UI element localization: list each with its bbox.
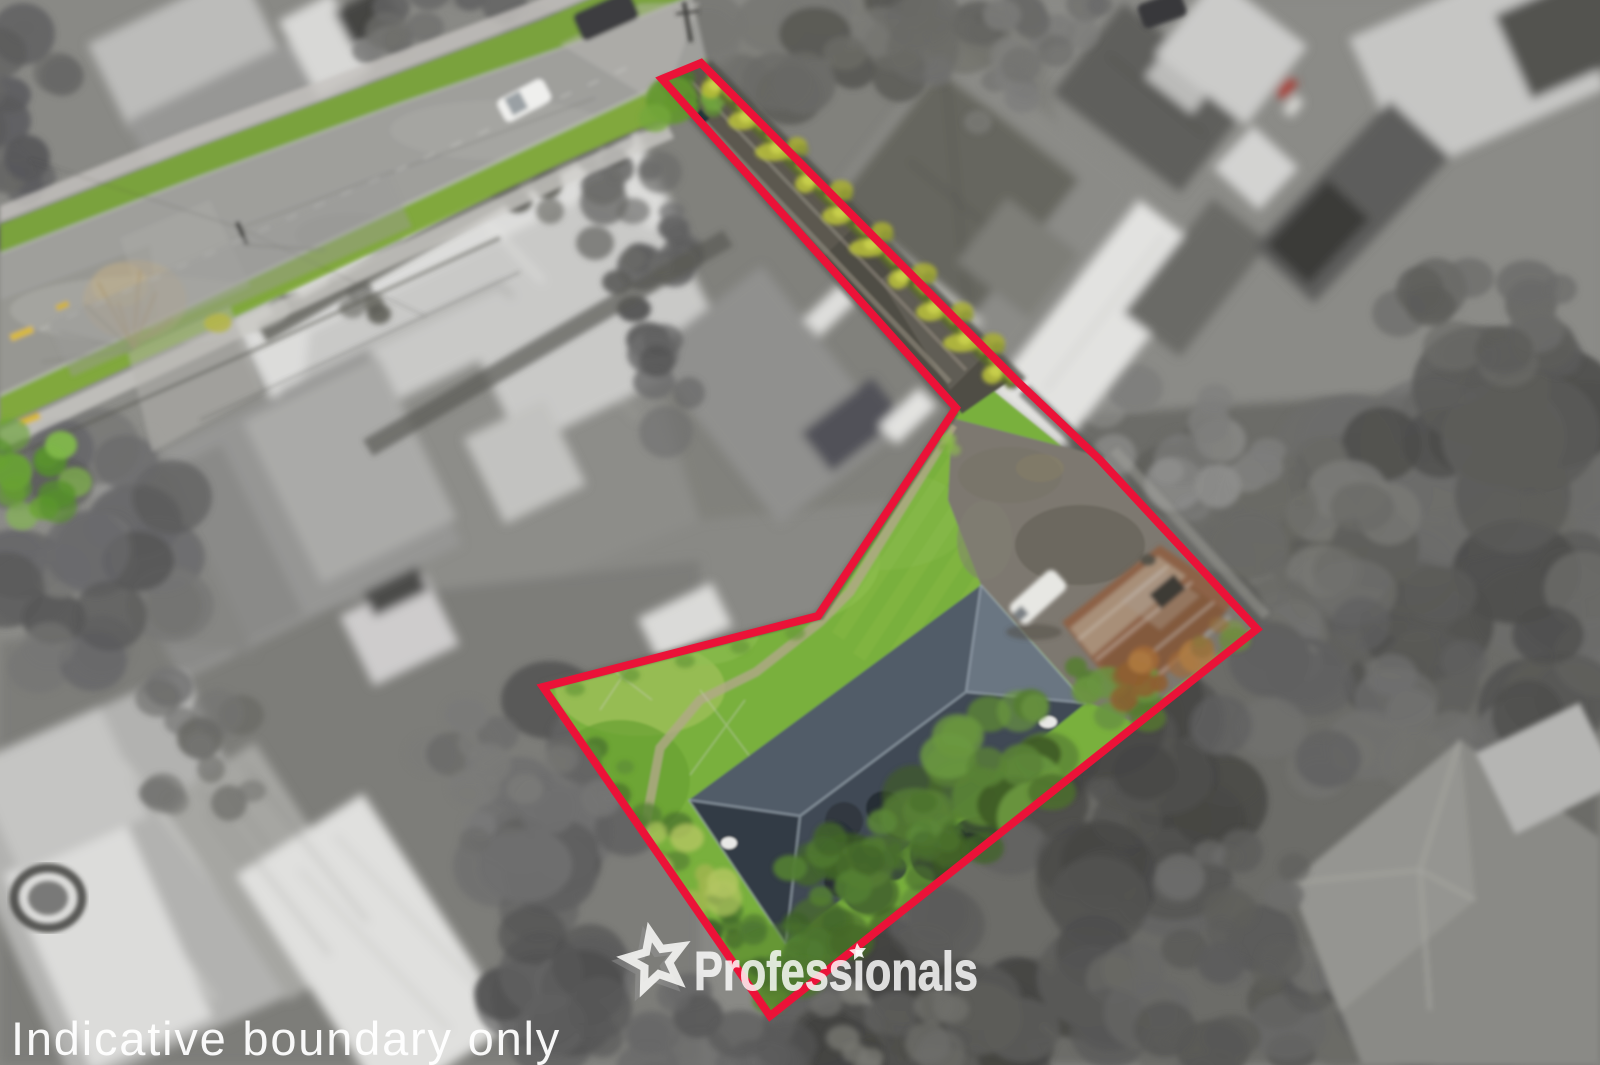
- svg-text:Professionals: Professionals: [694, 940, 978, 1002]
- svg-text:Indicative boundary only: Indicative boundary only: [11, 1012, 561, 1065]
